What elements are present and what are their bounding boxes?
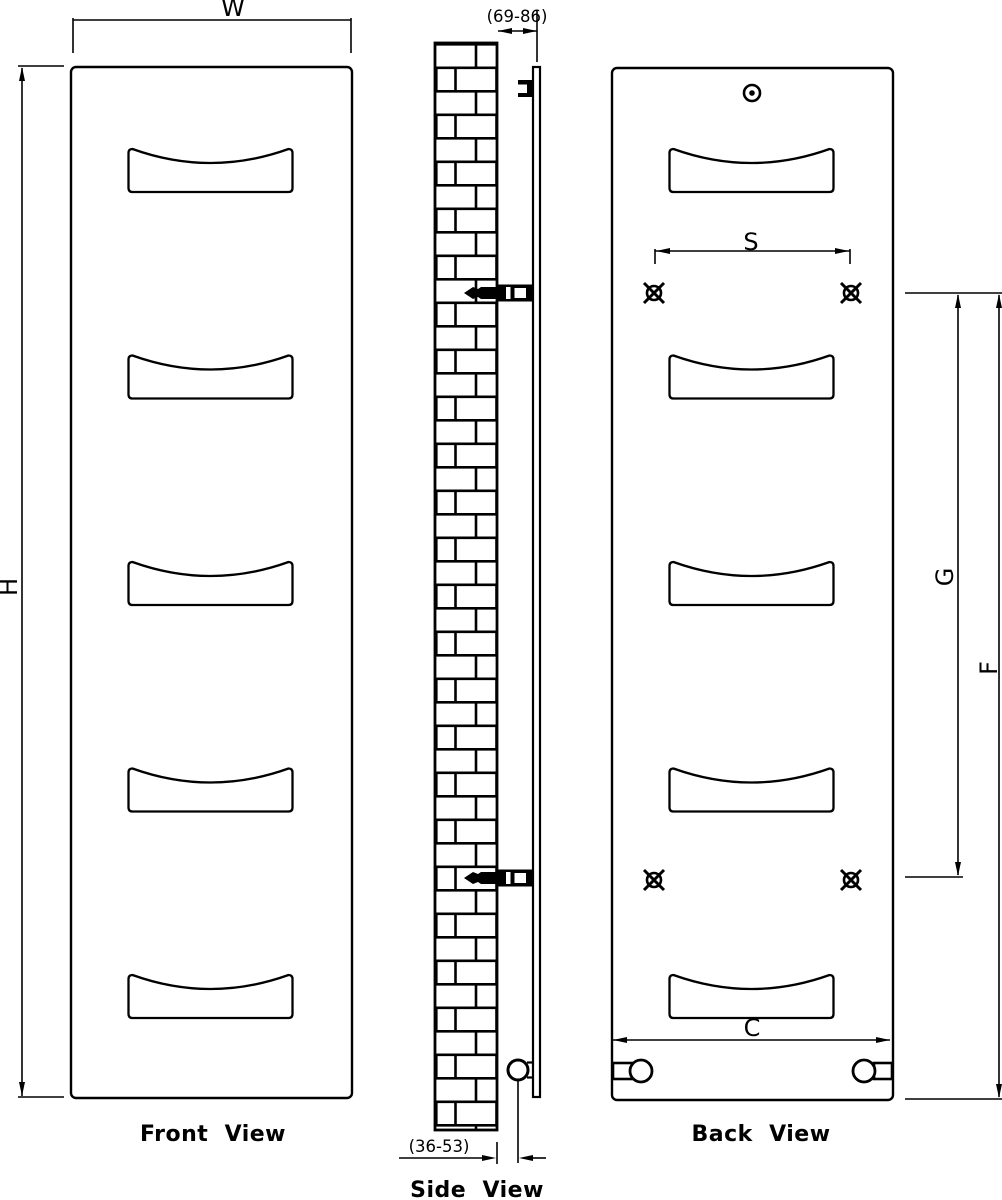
air-vent <box>744 85 760 101</box>
dim-label-wall-offset-top: (69-86) <box>487 7 548 26</box>
dim-label-W: W <box>221 0 245 22</box>
radiator-technical-drawing: Front View W H Side <box>0 0 1002 1200</box>
side-panel-outline <box>533 67 540 1097</box>
dimension-F: F <box>905 294 1002 1099</box>
brick-wall <box>435 43 497 1130</box>
dimension-W: W <box>73 0 351 53</box>
dim-label-wall-offset-bottom: (36-53) <box>409 1137 470 1156</box>
valve-connection-left <box>613 1060 652 1082</box>
front-view: Front View <box>71 67 352 1147</box>
pipe-valve-circle <box>508 1060 528 1080</box>
side-view-caption: Side View <box>410 1178 544 1200</box>
valve-connection-right <box>853 1060 892 1082</box>
dim-label-F: F <box>975 661 1002 675</box>
mounting-point-top-left <box>644 283 664 303</box>
side-view: Side View <box>410 43 544 1200</box>
top-rail-clip <box>518 80 532 97</box>
back-view-caption: Back View <box>691 1122 830 1147</box>
technical-drawing-page: Front View W H Side <box>0 0 1002 1200</box>
mounting-point-top-right <box>841 283 861 303</box>
dim-label-G: G <box>931 568 959 587</box>
front-view-caption: Front View <box>140 1122 286 1147</box>
dimension-H: H <box>0 66 64 1097</box>
dim-label-C: C <box>744 1014 761 1042</box>
dimension-G: G <box>905 293 1002 877</box>
dimension-wall-offset-bottom: (36-53) <box>399 1137 546 1164</box>
mounting-point-bottom-left <box>644 870 664 890</box>
dim-label-H: H <box>0 578 23 596</box>
bottom-pipe-connection <box>508 1060 534 1163</box>
dim-label-S: S <box>743 228 758 256</box>
mounting-point-bottom-right <box>841 870 861 890</box>
